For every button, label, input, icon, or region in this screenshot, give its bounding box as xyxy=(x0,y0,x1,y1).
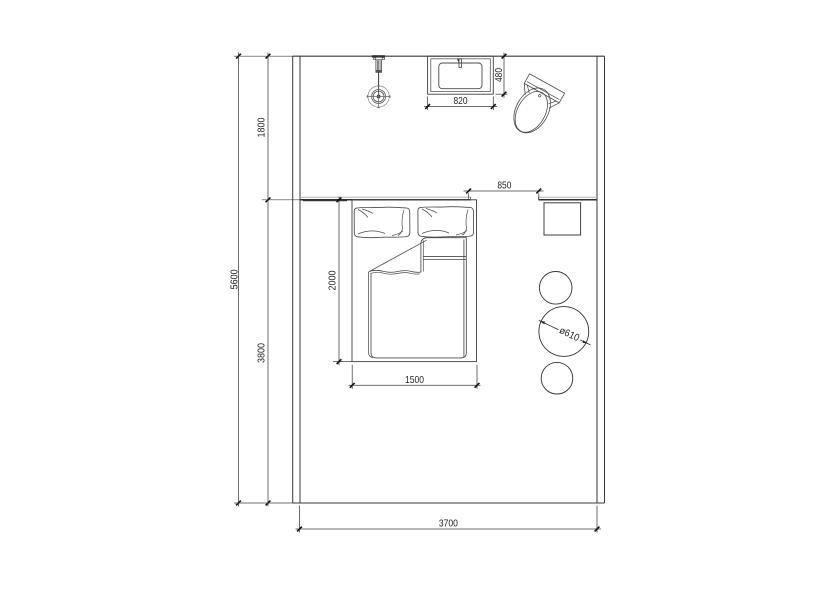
svg-text:5600: 5600 xyxy=(229,269,241,289)
svg-text:3800: 3800 xyxy=(256,343,268,363)
svg-text:3700: 3700 xyxy=(439,518,458,530)
svg-text:480: 480 xyxy=(493,68,505,82)
svg-text:820: 820 xyxy=(454,95,468,107)
svg-text:2000: 2000 xyxy=(327,270,339,290)
svg-text:850: 850 xyxy=(497,180,511,192)
svg-text:1800: 1800 xyxy=(256,117,268,137)
svg-text:1500: 1500 xyxy=(405,374,424,386)
